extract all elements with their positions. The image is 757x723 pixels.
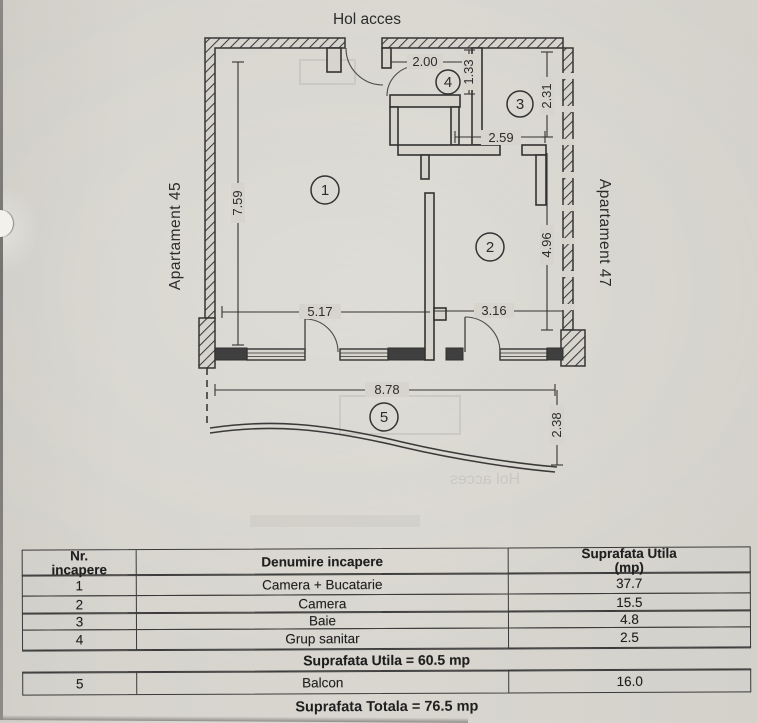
room-number-1: 1 — [321, 182, 329, 199]
cell-name: Baie — [137, 612, 509, 630]
room-numbers: 1 2 3 4 5 — [321, 74, 524, 426]
header-incapere: incapere — [51, 563, 107, 577]
header-mp-label: (mp) — [615, 560, 644, 574]
dim-2.59: 2.59 — [488, 130, 513, 145]
dim-2.38: 2.38 — [549, 412, 564, 437]
dim-7.59: 7.59 — [230, 190, 245, 215]
dim-1.33: 1.33 — [461, 59, 476, 84]
cell-nr: 1 — [23, 575, 137, 595]
dim-8.78: 8.78 — [374, 382, 399, 397]
cell-name: Grup sanitar — [137, 628, 509, 650]
dim-5.17: 5.17 — [307, 304, 332, 319]
header-suprafata-label: Suprafata Utila — [581, 547, 676, 561]
room-markers — [311, 70, 533, 431]
header-nr: Nr. — [70, 549, 88, 563]
cell-name: Camera + Bucatarie — [137, 574, 509, 596]
balcony-row: 5 Balcon 16.0 — [22, 669, 751, 696]
hol-acces-label: Hol acces — [333, 11, 401, 28]
cell-area: 15.5 — [509, 593, 750, 611]
ghost-text: Hol acces — [450, 471, 520, 488]
cell-area: 37.7 — [509, 573, 750, 594]
apartament-47-label: Apartament 47 — [596, 179, 613, 287]
cell-name: Camera — [137, 594, 509, 613]
cell-nr: 5 — [23, 673, 137, 695]
room-number-4: 4 — [444, 74, 452, 91]
room-number-5: 5 — [380, 409, 388, 426]
floor-plan-drawing: Hol acces Hol acces Apartament 45 Aparta… — [0, 0, 757, 545]
cell-nr: 2 — [23, 596, 137, 613]
total-line: Suprafata Totala = 76.5 mp — [22, 698, 751, 717]
header-suprafata: Suprafata Utila (mp) — [509, 547, 750, 573]
table-header-row: Nr. incapere Denumire incapere Suprafata… — [22, 546, 751, 576]
cell-area: 16.0 — [509, 670, 750, 693]
cell-area: 4.8 — [509, 611, 750, 628]
scanned-floor-plan-page: Hol acces Hol acces Apartament 45 Aparta… — [0, 0, 757, 720]
room-number-2: 2 — [486, 239, 494, 256]
dim-4.96: 4.96 — [539, 232, 554, 257]
dim-2.31: 2.31 — [539, 83, 554, 108]
dim-3.16: 3.16 — [481, 303, 506, 318]
area-table: Nr. incapere Denumire incapere Suprafata… — [22, 546, 752, 717]
south-wall — [215, 348, 563, 360]
paper-left-edge — [0, 0, 3, 720]
room-number-3: 3 — [516, 96, 524, 113]
exterior-walls — [199, 38, 585, 368]
cell-name: Balcon — [137, 671, 509, 695]
cell-nr: 4 — [23, 630, 137, 650]
dim-2.00: 2.00 — [412, 54, 437, 69]
cell-area: 2.5 — [509, 627, 750, 648]
header-denumire-label: Denumire incapere — [261, 554, 383, 570]
apartament-45-label: Apartament 45 — [167, 182, 184, 290]
paper-bottom-edge — [0, 715, 468, 723]
header-denumire: Denumire incapere — [137, 548, 509, 575]
table-row: 4 Grup sanitar 2.5 — [22, 626, 751, 651]
cell-nr: 3 — [23, 613, 137, 629]
header-nr-incapere: Nr. incapere — [23, 550, 137, 575]
